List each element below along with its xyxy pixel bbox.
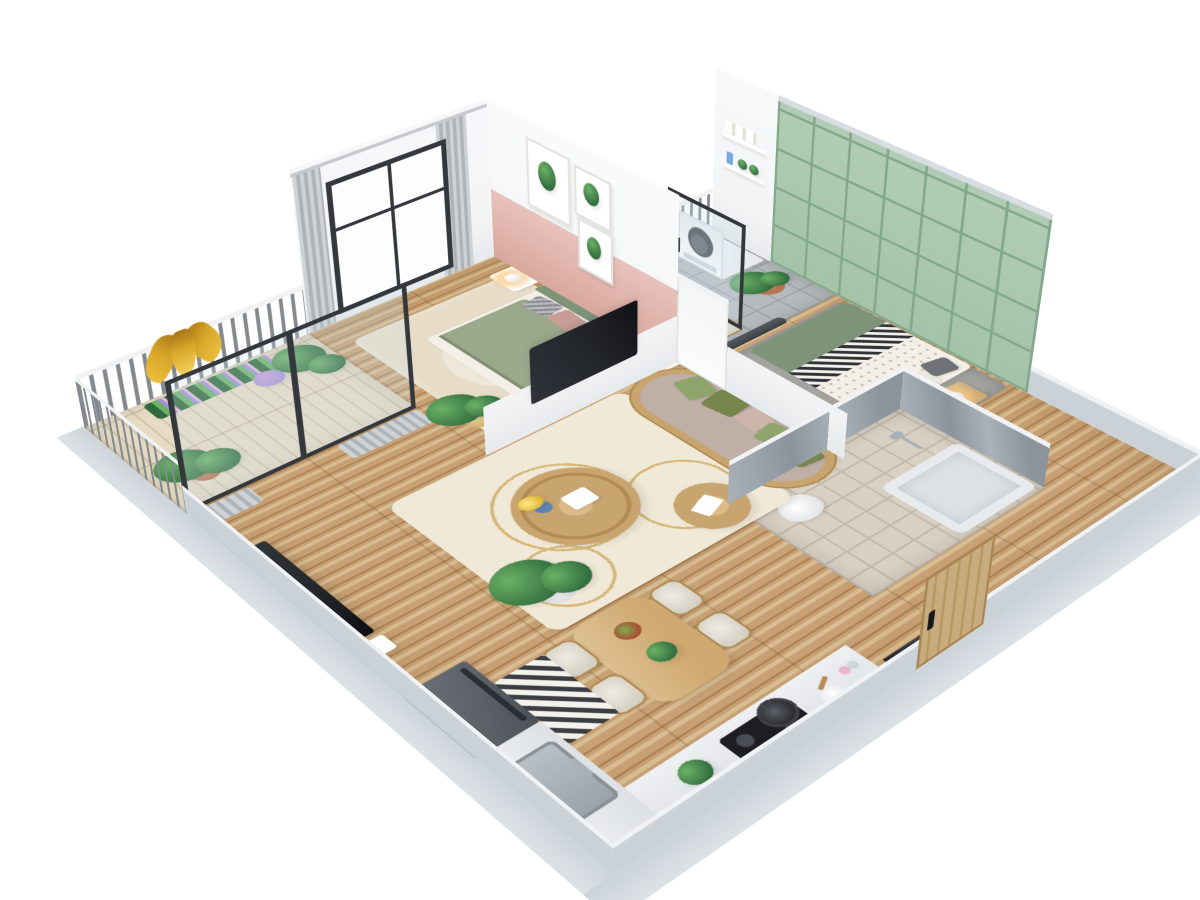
- wall-cap: [613, 451, 1200, 848]
- wall-cap: [182, 485, 613, 849]
- floorplan-scene: [0, 0, 1200, 900]
- door-lock-handle: [927, 609, 935, 631]
- detergent-bottle: [726, 151, 733, 166]
- glass-door-mullion: [285, 329, 307, 461]
- southwest-low-wall: [182, 485, 613, 875]
- southeast-low-wall: [613, 451, 1200, 874]
- ne-low-wall: [1028, 366, 1200, 480]
- botanical-print: [538, 158, 556, 195]
- botanical-print: [583, 180, 599, 210]
- wall-cap-strip: [778, 95, 1053, 221]
- window-mullion-v: [387, 164, 400, 286]
- apartment-3d-plan: [85, 195, 1198, 874]
- wall-cap: [1031, 366, 1200, 457]
- botanical-print: [587, 234, 601, 263]
